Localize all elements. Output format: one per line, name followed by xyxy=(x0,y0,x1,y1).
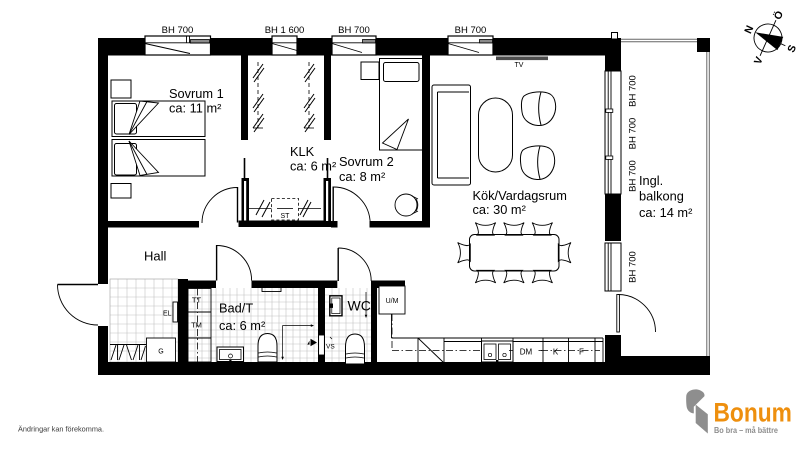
svg-text:Sovrum 2: Sovrum 2 xyxy=(339,154,394,169)
svg-text:Ingl.: Ingl. xyxy=(639,173,663,188)
svg-text:TT: TT xyxy=(192,296,202,305)
svg-text:ca: 8 m²: ca: 8 m² xyxy=(339,169,386,184)
svg-text:U/M: U/M xyxy=(386,298,399,305)
svg-text:Sovrum 1: Sovrum 1 xyxy=(169,86,224,101)
svg-text:EL: EL xyxy=(163,311,172,318)
svg-text:ca: 6 m²: ca: 6 m² xyxy=(290,159,337,174)
svg-text:BH 700: BH 700 xyxy=(628,251,639,283)
svg-text:WC: WC xyxy=(348,298,371,314)
svg-text:ca: 14 m²: ca: 14 m² xyxy=(639,205,693,220)
svg-text:balkong: balkong xyxy=(639,189,684,204)
svg-text:Ändringar kan förekomma.: Ändringar kan förekomma. xyxy=(18,425,104,434)
svg-text:VS: VS xyxy=(326,344,335,351)
svg-text:BH 700: BH 700 xyxy=(628,118,639,150)
svg-text:ST: ST xyxy=(281,213,291,220)
svg-text:ca: 11 m²: ca: 11 m² xyxy=(169,101,222,116)
svg-text:F: F xyxy=(579,348,584,357)
svg-text:Kök/Vardagsrum: Kök/Vardagsrum xyxy=(473,188,567,203)
svg-text:Bo bra – må bättre: Bo bra – må bättre xyxy=(714,426,779,436)
svg-text:BH 700: BH 700 xyxy=(628,75,639,107)
svg-text:ca: 6 m²: ca: 6 m² xyxy=(219,318,266,333)
svg-text:ca: 30 m²: ca: 30 m² xyxy=(473,202,527,217)
svg-text:TM: TM xyxy=(191,321,202,330)
svg-text:TV: TV xyxy=(515,62,524,69)
svg-text:BH 700: BH 700 xyxy=(162,25,194,36)
svg-text:Bonum: Bonum xyxy=(714,398,792,428)
svg-text:BH 700: BH 700 xyxy=(628,160,639,192)
svg-text:KLK: KLK xyxy=(290,144,315,159)
svg-text:BH 1 600: BH 1 600 xyxy=(265,25,305,36)
svg-text:BH 700: BH 700 xyxy=(338,25,370,36)
svg-text:BH 700: BH 700 xyxy=(455,25,487,36)
svg-text:K: K xyxy=(553,348,559,357)
svg-text:G: G xyxy=(158,349,163,356)
svg-text:Bad/T: Bad/T xyxy=(219,301,253,316)
svg-text:Hall: Hall xyxy=(144,249,167,264)
svg-text:DM: DM xyxy=(520,348,533,357)
